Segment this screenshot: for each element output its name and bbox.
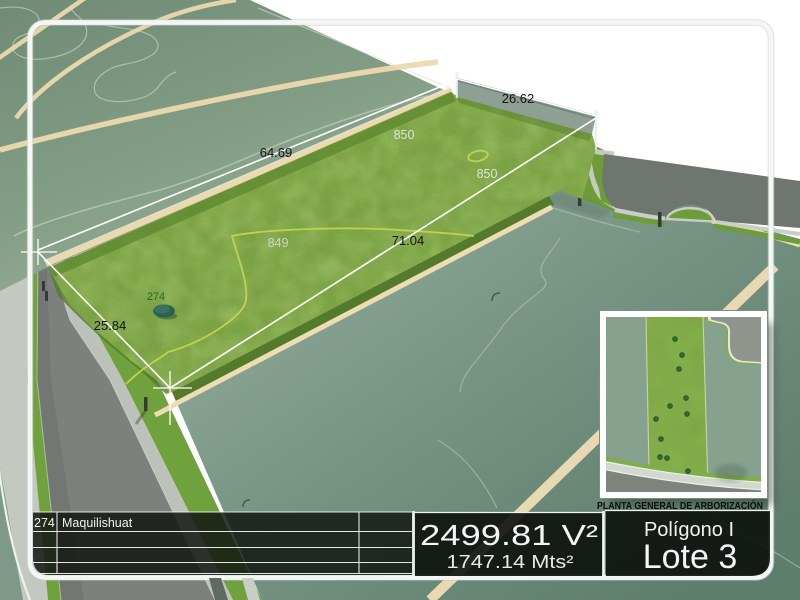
svg-text:Maquilishuat: Maquilishuat [62, 516, 133, 530]
svg-text:274: 274 [147, 291, 165, 303]
svg-text:Lote 3: Lote 3 [643, 538, 738, 576]
svg-text:850: 850 [477, 167, 498, 181]
svg-text:1747.14 Mts²: 1747.14 Mts² [447, 552, 574, 572]
svg-text:25.84: 25.84 [94, 318, 127, 333]
svg-text:64.69: 64.69 [260, 145, 293, 160]
svg-text:849: 849 [268, 236, 289, 250]
svg-text:2499.81 V²: 2499.81 V² [420, 520, 598, 552]
svg-text:850: 850 [394, 128, 415, 142]
svg-text:26.62: 26.62 [502, 91, 535, 106]
svg-text:274: 274 [34, 516, 55, 530]
svg-text:71.04: 71.04 [392, 233, 425, 248]
